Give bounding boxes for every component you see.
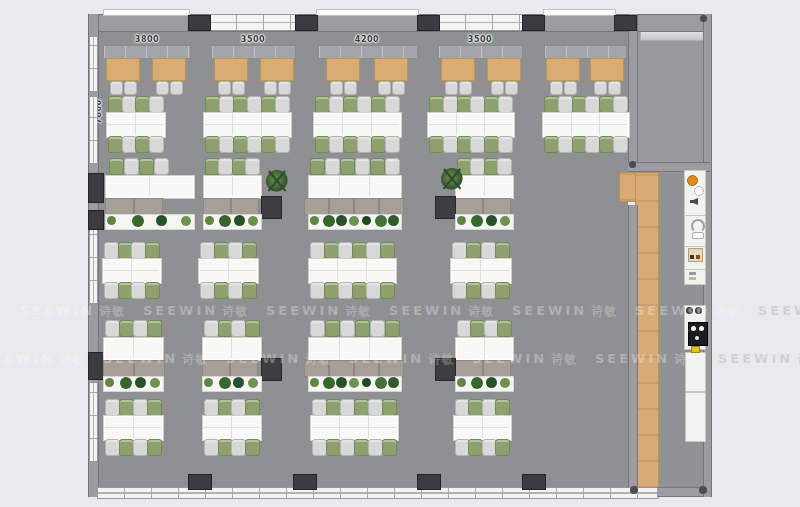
storage-cabinet <box>483 198 511 215</box>
office-chair <box>149 136 164 153</box>
office-chair <box>154 158 169 175</box>
office-chair <box>147 320 162 337</box>
booth-chair <box>218 81 231 95</box>
office-chair <box>108 96 123 113</box>
office-chair <box>599 136 614 153</box>
office-chair <box>544 136 559 153</box>
office-chair <box>371 136 386 153</box>
storage-cabinet <box>203 198 231 215</box>
dark-cabinet <box>261 196 282 219</box>
office-chair <box>385 96 400 113</box>
storage-cabinet <box>379 360 404 377</box>
office-chair <box>585 96 600 113</box>
office-chair <box>233 96 248 113</box>
booth-chair <box>124 81 137 95</box>
office-chair <box>329 96 344 113</box>
office-chair <box>544 96 559 113</box>
plant-icon <box>107 216 116 225</box>
storage-cabinet <box>455 198 483 215</box>
office-chair <box>357 96 372 113</box>
office-chair <box>119 320 134 337</box>
desk-seam <box>311 427 396 428</box>
booth-chair <box>608 81 621 95</box>
booth-table <box>260 58 294 81</box>
plant-icon <box>234 215 245 226</box>
office-chair <box>231 399 246 416</box>
plant-icon <box>457 216 466 225</box>
office-chair <box>315 136 330 153</box>
office-chair <box>242 282 257 299</box>
office-chair <box>233 136 248 153</box>
furniture-layer <box>0 0 800 507</box>
office-chair <box>385 136 400 153</box>
plant-icon <box>500 378 510 388</box>
office-chair <box>380 282 395 299</box>
plant-icon <box>219 377 231 389</box>
dark-cabinet <box>435 196 456 219</box>
office-chair <box>429 96 444 113</box>
storage-cabinet <box>455 360 483 377</box>
desk <box>308 175 402 199</box>
office-chair <box>443 136 458 153</box>
office-chair <box>497 158 512 175</box>
desk <box>106 112 166 138</box>
office-chair <box>312 439 327 456</box>
office-chair <box>385 158 400 175</box>
booth-chair <box>550 81 563 95</box>
storage-cabinet <box>329 198 354 215</box>
office-chair <box>466 282 481 299</box>
plant-icon <box>471 377 483 389</box>
bench-sofa <box>211 45 296 59</box>
booth-chair <box>594 81 607 95</box>
office-chair <box>218 158 233 175</box>
office-chair <box>484 96 499 113</box>
desk-seam <box>451 270 509 271</box>
office-chair <box>205 96 220 113</box>
desk-seam <box>232 176 233 196</box>
office-chair <box>468 439 483 456</box>
plant-icon <box>205 216 214 225</box>
booth-table <box>590 58 624 81</box>
storage-cabinet <box>103 360 134 377</box>
desk-seam <box>454 427 509 428</box>
booth-table <box>487 58 521 81</box>
office-chair <box>382 439 397 456</box>
office-chair <box>382 399 397 416</box>
desk-seam <box>484 176 485 196</box>
plant-icon <box>248 378 258 388</box>
booth-chair <box>491 81 504 95</box>
booth-chair <box>232 81 245 95</box>
office-chair <box>343 96 358 113</box>
office-chair <box>261 136 276 153</box>
office-chair <box>585 136 600 153</box>
office-chair <box>245 158 260 175</box>
office-chair <box>354 399 369 416</box>
plant-icon <box>204 378 213 387</box>
plant-icon <box>156 215 167 226</box>
plant-icon <box>388 215 399 226</box>
office-chair <box>310 320 325 337</box>
plant-icon <box>362 216 371 225</box>
desk <box>203 112 292 138</box>
booth-chair <box>505 81 518 95</box>
desk <box>202 337 262 361</box>
plant-icon <box>349 378 359 388</box>
office-chair <box>366 282 381 299</box>
office-chair <box>133 320 148 337</box>
office-chair <box>214 242 229 259</box>
office-chair <box>370 320 385 337</box>
booth-chair <box>264 81 277 95</box>
office-chair <box>599 96 614 113</box>
office-chair <box>452 282 467 299</box>
office-chair <box>338 242 353 259</box>
bench-sofa <box>318 45 418 59</box>
office-chair <box>558 96 573 113</box>
desk <box>308 258 397 284</box>
desk-seam <box>103 270 159 271</box>
desk-seam <box>309 270 394 271</box>
office-chair <box>352 242 367 259</box>
potted-plant-icon <box>266 170 288 192</box>
office-chair <box>147 439 162 456</box>
office-chair <box>352 282 367 299</box>
office-chair <box>613 136 628 153</box>
office-chair <box>247 136 262 153</box>
dark-cabinet <box>261 358 282 381</box>
office-chair <box>498 96 513 113</box>
desk-seam <box>149 176 150 196</box>
storage-cabinet <box>304 360 329 377</box>
dark-cabinet <box>435 358 456 381</box>
booth-table <box>152 58 186 81</box>
booth-table <box>106 58 140 81</box>
booth-chair <box>378 81 391 95</box>
booth-chair <box>445 81 458 95</box>
desk-seam <box>543 124 627 125</box>
office-chair <box>105 320 120 337</box>
office-chair <box>275 96 290 113</box>
office-chair <box>124 158 139 175</box>
booth-table <box>374 58 408 81</box>
office-chair <box>135 96 150 113</box>
plant-icon <box>120 377 132 389</box>
plant-icon <box>310 378 319 387</box>
desk-seam <box>369 176 370 196</box>
office-chair <box>135 136 150 153</box>
office-chair <box>247 96 262 113</box>
office-chair <box>131 282 146 299</box>
plant-icon <box>336 215 347 226</box>
office-chair <box>340 439 355 456</box>
office-chair <box>145 282 160 299</box>
office-chair <box>245 439 260 456</box>
plant-icon <box>388 377 399 388</box>
plant-icon <box>135 377 146 388</box>
booth-table <box>441 58 475 81</box>
plant-icon <box>181 216 191 226</box>
desk-seam <box>339 338 340 358</box>
storage-cabinet <box>105 198 134 215</box>
office-chair <box>231 439 246 456</box>
storage-cabinet <box>134 198 163 215</box>
floor-plan-canvas: 3800 3500 4200 3500 7800 SEEWIN诗敏SEEWIN诗… <box>0 0 800 507</box>
office-chair <box>468 399 483 416</box>
office-chair <box>145 242 160 259</box>
desk <box>202 415 262 441</box>
office-chair <box>228 242 243 259</box>
office-chair <box>326 439 341 456</box>
office-chair <box>242 242 257 259</box>
office-chair <box>104 242 119 259</box>
office-chair <box>105 439 120 456</box>
office-chair <box>340 158 355 175</box>
office-chair <box>357 136 372 153</box>
plant-icon <box>375 215 387 227</box>
office-chair <box>368 399 383 416</box>
booth-chair <box>459 81 472 95</box>
storage-cabinet <box>134 360 165 377</box>
desk-seam <box>199 270 256 271</box>
office-chair <box>452 242 467 259</box>
desk-seam <box>133 338 134 358</box>
desk-seam <box>369 338 370 358</box>
office-chair <box>354 439 369 456</box>
office-chair <box>370 158 385 175</box>
bench-sofa <box>544 45 627 59</box>
office-chair <box>325 320 340 337</box>
desk-seam <box>107 124 163 125</box>
office-chair <box>470 136 485 153</box>
office-chair <box>613 96 628 113</box>
desk-seam <box>203 427 259 428</box>
office-chair <box>219 96 234 113</box>
office-chair <box>275 136 290 153</box>
desk-seam <box>104 427 161 428</box>
office-chair <box>495 242 510 259</box>
office-chair <box>312 399 327 416</box>
desk-seam <box>484 338 485 358</box>
plant-icon <box>310 216 319 225</box>
booth-chair <box>156 81 169 95</box>
desk <box>310 415 399 441</box>
office-chair <box>338 282 353 299</box>
booth-table <box>326 58 360 81</box>
office-chair <box>324 242 339 259</box>
office-chair <box>204 439 219 456</box>
office-chair <box>104 282 119 299</box>
office-chair <box>371 96 386 113</box>
office-chair <box>119 439 134 456</box>
booth-chair <box>110 81 123 95</box>
office-chair <box>310 158 325 175</box>
plant-icon <box>486 215 497 226</box>
booth-chair <box>278 81 291 95</box>
office-chair <box>385 320 400 337</box>
storage-cabinet <box>230 360 258 377</box>
plant-icon <box>150 378 160 388</box>
office-chair <box>481 282 496 299</box>
desk <box>542 112 630 138</box>
bench-sofa <box>103 45 191 59</box>
booth-chair <box>330 81 343 95</box>
storage-cabinet <box>379 198 404 215</box>
storage-cabinet <box>354 198 379 215</box>
office-chair <box>368 439 383 456</box>
plant-icon <box>105 378 114 387</box>
office-chair <box>340 320 355 337</box>
office-chair <box>147 399 162 416</box>
office-chair <box>343 136 358 153</box>
plant-icon <box>375 377 387 389</box>
office-chair <box>214 282 229 299</box>
plant-icon <box>362 378 371 387</box>
office-chair <box>470 320 485 337</box>
plant-icon <box>248 216 258 226</box>
office-chair <box>133 439 148 456</box>
office-chair <box>325 158 340 175</box>
desk-seam <box>314 124 399 125</box>
office-chair <box>495 399 510 416</box>
office-chair <box>131 242 146 259</box>
office-chair <box>133 399 148 416</box>
plant-icon <box>323 377 335 389</box>
plant-icon <box>457 378 466 387</box>
office-chair <box>429 136 444 153</box>
office-chair <box>498 136 513 153</box>
storage-cabinet <box>304 198 329 215</box>
booth-chair <box>392 81 405 95</box>
office-chair <box>481 242 496 259</box>
desk-seam <box>428 124 512 125</box>
desk <box>427 112 515 138</box>
office-chair <box>149 96 164 113</box>
storage-cabinet <box>483 360 511 377</box>
office-chair <box>315 96 330 113</box>
desk <box>313 112 402 138</box>
office-chair <box>470 96 485 113</box>
office-chair <box>231 320 246 337</box>
office-chair <box>355 320 370 337</box>
potted-plant-icon <box>441 168 463 190</box>
booth-chair <box>170 81 183 95</box>
office-chair <box>139 158 154 175</box>
office-chair <box>219 136 234 153</box>
office-chair <box>326 399 341 416</box>
office-chair <box>495 439 510 456</box>
office-chair <box>228 282 243 299</box>
desk <box>105 175 195 199</box>
desk-seam <box>231 338 232 358</box>
plant-icon <box>336 377 347 388</box>
office-chair <box>329 136 344 153</box>
office-chair <box>310 282 325 299</box>
desk <box>450 258 512 284</box>
office-chair <box>204 320 219 337</box>
plant-icon <box>471 215 483 227</box>
office-chair <box>204 399 219 416</box>
desk-seam <box>339 176 340 196</box>
office-chair <box>205 136 220 153</box>
booth-chair <box>564 81 577 95</box>
plant-icon <box>486 377 497 388</box>
office-chair <box>245 320 260 337</box>
office-chair <box>340 399 355 416</box>
storage-cabinet <box>202 360 230 377</box>
booth-table <box>214 58 248 81</box>
plant-icon <box>349 216 359 226</box>
office-chair <box>324 282 339 299</box>
plant-icon <box>219 215 231 227</box>
booth-table <box>546 58 580 81</box>
office-chair <box>558 136 573 153</box>
plant-icon <box>132 215 144 227</box>
desk-seam <box>204 124 289 125</box>
desk <box>102 258 162 284</box>
plant-icon <box>500 216 510 226</box>
office-chair <box>380 242 395 259</box>
office-chair <box>119 399 134 416</box>
office-chair <box>355 158 370 175</box>
office-chair <box>495 282 510 299</box>
storage-cabinet <box>231 198 259 215</box>
office-chair <box>466 242 481 259</box>
office-chair <box>470 158 485 175</box>
office-chair <box>200 282 215 299</box>
office-chair <box>108 136 123 153</box>
office-chair <box>366 242 381 259</box>
booth-chair <box>344 81 357 95</box>
office-chair <box>200 242 215 259</box>
office-chair <box>105 399 120 416</box>
office-chair <box>245 399 260 416</box>
office-chair <box>310 242 325 259</box>
bench-sofa <box>438 45 523 59</box>
desk <box>308 337 402 361</box>
office-chair <box>484 136 499 153</box>
office-chair <box>443 96 458 113</box>
office-chair <box>497 320 512 337</box>
storage-cabinet <box>329 360 354 377</box>
storage-cabinet <box>354 360 379 377</box>
office-chair <box>109 158 124 175</box>
plant-icon <box>233 377 244 388</box>
office-chair <box>261 96 276 113</box>
plant-icon <box>323 215 335 227</box>
